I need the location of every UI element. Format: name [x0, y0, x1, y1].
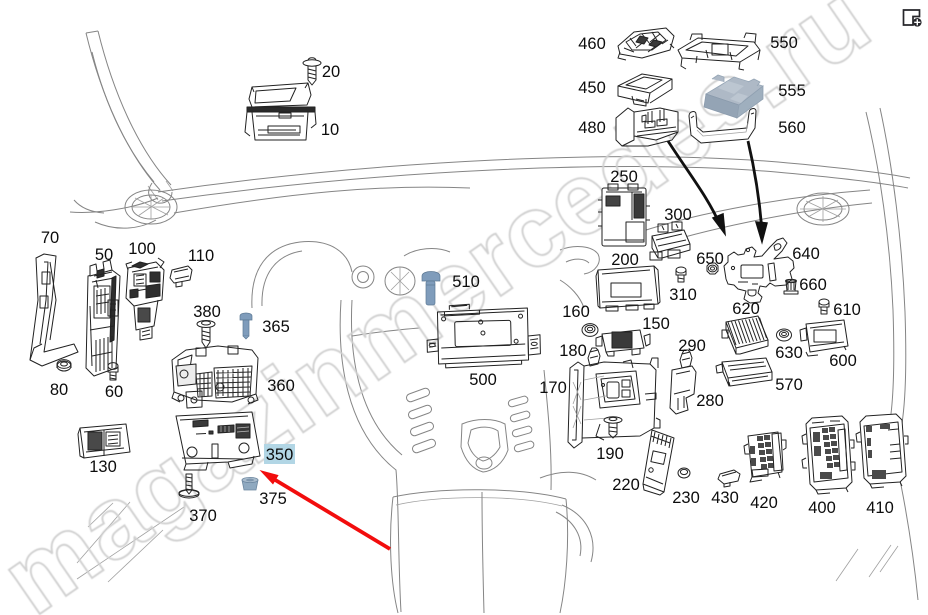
svg-text:220: 220 — [612, 476, 640, 494]
svg-text:380: 380 — [193, 303, 221, 321]
svg-text:630: 630 — [775, 344, 803, 362]
svg-text:500: 500 — [469, 371, 497, 389]
svg-text:190: 190 — [596, 445, 624, 463]
svg-text:600: 600 — [829, 352, 857, 370]
svg-text:400: 400 — [808, 499, 836, 517]
svg-text:20: 20 — [322, 63, 340, 81]
svg-text:170: 170 — [539, 379, 567, 397]
svg-text:250: 250 — [610, 168, 638, 186]
svg-text:550: 550 — [770, 34, 798, 52]
svg-text:350: 350 — [266, 446, 294, 464]
svg-text:620: 620 — [732, 300, 760, 318]
svg-text:50: 50 — [95, 246, 113, 264]
svg-text:510: 510 — [452, 273, 480, 291]
svg-text:70: 70 — [41, 229, 59, 247]
svg-text:460: 460 — [578, 35, 606, 53]
svg-text:450: 450 — [578, 79, 606, 97]
svg-text:360: 360 — [267, 377, 295, 395]
svg-text:410: 410 — [866, 499, 894, 517]
svg-text:280: 280 — [696, 392, 724, 410]
svg-text:60: 60 — [105, 383, 123, 401]
svg-text:560: 560 — [778, 119, 806, 137]
svg-text:375: 375 — [259, 490, 287, 508]
svg-text:110: 110 — [188, 247, 214, 265]
svg-text:80: 80 — [50, 381, 68, 399]
svg-text:480: 480 — [578, 119, 606, 137]
svg-text:290: 290 — [678, 337, 706, 355]
svg-text:365: 365 — [262, 318, 290, 336]
svg-text:650: 650 — [696, 250, 724, 268]
svg-text:130: 130 — [89, 458, 117, 476]
svg-text:660: 660 — [799, 276, 827, 294]
svg-text:610: 610 — [833, 301, 861, 319]
svg-text:640: 640 — [792, 245, 820, 263]
svg-text:230: 230 — [672, 489, 700, 507]
svg-text:10: 10 — [321, 121, 339, 139]
svg-text:180: 180 — [559, 342, 587, 360]
svg-text:370: 370 — [189, 507, 217, 525]
svg-text:200: 200 — [611, 251, 639, 269]
svg-text:420: 420 — [750, 494, 778, 512]
svg-text:430: 430 — [711, 489, 739, 507]
svg-text:160: 160 — [562, 303, 590, 321]
svg-text:100: 100 — [128, 240, 156, 258]
svg-text:310: 310 — [669, 286, 697, 304]
svg-text:150: 150 — [642, 315, 670, 333]
svg-text:300: 300 — [664, 206, 692, 224]
svg-text:570: 570 — [775, 376, 803, 394]
svg-text:555: 555 — [778, 82, 806, 100]
